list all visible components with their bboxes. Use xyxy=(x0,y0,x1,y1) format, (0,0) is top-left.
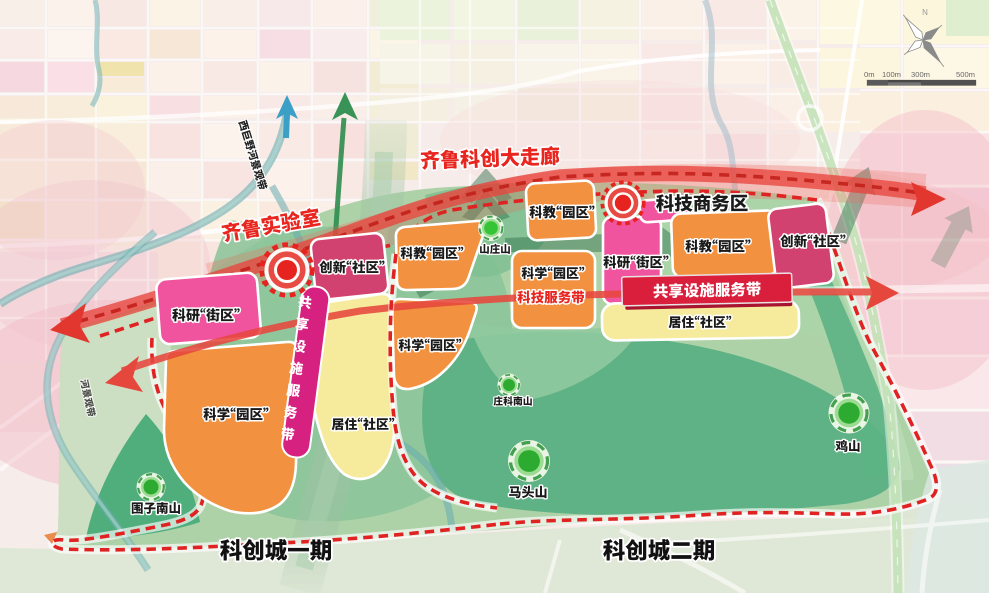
svg-text:100m: 100m xyxy=(882,70,901,79)
svg-text:N: N xyxy=(922,8,928,17)
svg-text:0m: 0m xyxy=(864,70,875,79)
svg-text:300m: 300m xyxy=(911,70,930,79)
svg-text:500m: 500m xyxy=(956,70,975,79)
